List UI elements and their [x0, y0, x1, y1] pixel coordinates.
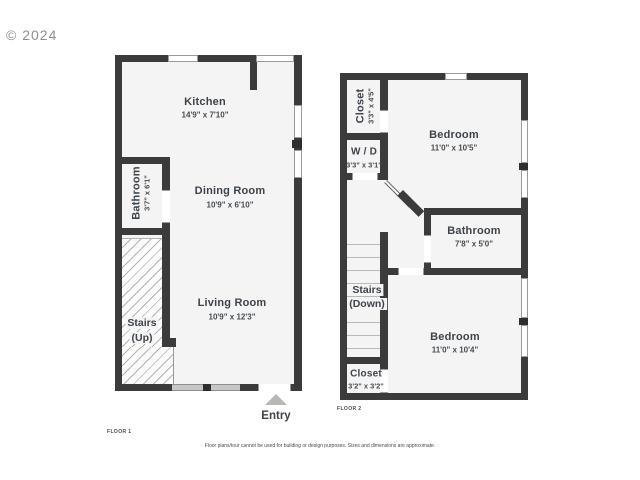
door-opening — [162, 190, 170, 223]
room-dims-bedroom-top: 11'0" x 10'5" — [431, 144, 478, 153]
window-sill — [172, 384, 203, 391]
room-label-bathroom2: Bathroom — [447, 225, 501, 237]
floor1-plan: Kitchen 14'9" x 7'10" Dining Room 10'9" … — [115, 55, 302, 391]
room-dims-bathroom2: 7'8" x 5'0" — [455, 240, 493, 249]
window — [294, 150, 302, 178]
window — [521, 120, 528, 163]
room-label-kitchen: Kitchen — [184, 96, 226, 108]
door-opening — [424, 235, 431, 263]
copyright-watermark: © 2024 — [6, 27, 57, 43]
entry-door-opening — [258, 384, 291, 391]
wall — [340, 173, 352, 180]
window-mullion — [203, 384, 211, 391]
room-dims-bedroom-bottom: 11'0" x 10'4" — [432, 346, 479, 355]
room-label-closet-top: Closet 3'3" x 4'5" — [355, 88, 376, 124]
window-mullion — [519, 163, 528, 170]
wall — [291, 384, 302, 391]
window — [168, 55, 198, 62]
window — [521, 278, 528, 318]
window — [445, 73, 467, 80]
wall — [380, 357, 388, 369]
room-label-dining: Dining Room — [195, 185, 266, 197]
wall — [115, 228, 170, 235]
stairs-hatch — [122, 238, 162, 347]
wall — [340, 73, 347, 400]
room-dims-dining: 10'9" x 6'10" — [207, 201, 254, 210]
wall — [240, 384, 258, 391]
room-label-living: Living Room — [198, 297, 267, 309]
door-opening — [352, 173, 378, 180]
room-label-closet-top-text: Closet — [355, 88, 367, 124]
entry-arrow-icon — [265, 394, 287, 405]
floor1-caption: FLOOR 1 — [107, 429, 131, 435]
door-opening — [398, 268, 424, 275]
room-label-bathroom: Bathroom 3'7" x 6'1" — [131, 166, 152, 220]
wall — [115, 55, 168, 62]
room-dims-kitchen: 14'9" x 7'10" — [182, 111, 229, 120]
room-dims-bathroom: 3'7" x 6'1" — [143, 166, 152, 220]
room-label-wd: W / D — [351, 147, 377, 158]
window — [294, 105, 302, 138]
stairs-hatch — [122, 347, 174, 384]
wall — [424, 208, 431, 235]
window-mullion — [292, 140, 302, 148]
stairs-down-label-line2: (Down) — [347, 298, 387, 310]
wall — [162, 338, 176, 347]
wall — [162, 157, 170, 190]
wall — [424, 268, 521, 275]
room-dims-living: 10'9" x 12'3" — [209, 313, 256, 322]
room-dims-closet-bottom: 3'2" x 3'2" — [348, 382, 384, 391]
wall — [198, 55, 256, 62]
door-opening — [380, 110, 388, 133]
window — [521, 325, 528, 357]
wall — [115, 384, 172, 391]
room-label-bedroom-bottom: Bedroom — [430, 331, 480, 343]
room-dims-closet-top: 3'3" x 4'5" — [367, 88, 376, 124]
wall — [162, 235, 170, 347]
floor2-plan: Closet 3'3" x 4'5" Bedroom 11'0" x 10'5"… — [340, 73, 528, 400]
wall — [250, 62, 257, 90]
floor2-caption: FLOOR 2 — [337, 406, 361, 412]
wall — [380, 80, 388, 110]
wall — [340, 133, 388, 140]
window-mullion — [519, 318, 528, 325]
window-sill — [211, 384, 240, 391]
wall — [340, 73, 528, 80]
wall — [340, 393, 528, 400]
stairs-up-label-line1: Stairs — [125, 317, 158, 329]
wall — [424, 208, 521, 215]
window — [521, 170, 528, 198]
disclaimer-text: Floor plans/tour cannot be used for buil… — [205, 443, 435, 449]
entry-label: Entry — [261, 410, 290, 422]
stairs-down-label-line1: Stairs — [350, 284, 383, 296]
room-dims-wd: 3'3" x 3'1" — [346, 161, 382, 170]
room-label-bedroom-top: Bedroom — [429, 129, 479, 141]
stairs-up-label-line2: (Up) — [130, 332, 155, 344]
room-label-bathroom-text: Bathroom — [131, 166, 143, 220]
room-label-closet-bottom: Closet — [350, 369, 382, 380]
window — [256, 55, 294, 62]
wall — [115, 55, 122, 391]
